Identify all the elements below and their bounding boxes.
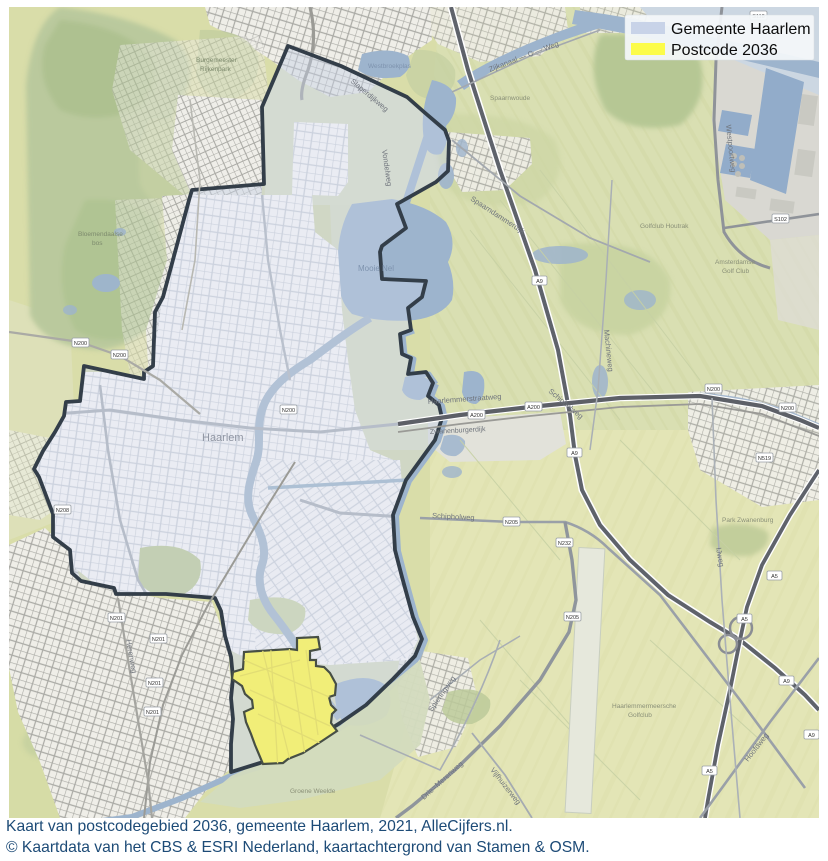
svg-text:Postcode 2036: Postcode 2036 xyxy=(671,42,778,59)
svg-text:Rijkenpark: Rijkenpark xyxy=(200,66,231,73)
svg-text:N201: N201 xyxy=(110,616,123,622)
svg-text:N205: N205 xyxy=(505,520,518,526)
svg-text:A9: A9 xyxy=(571,451,578,457)
svg-text:A5: A5 xyxy=(706,769,713,775)
svg-text:N519: N519 xyxy=(758,456,771,462)
svg-text:Burgemeester: Burgemeester xyxy=(196,57,238,64)
svg-text:Kaart van postcodegebied 2036,: Kaart van postcodegebied 2036, gemeente … xyxy=(6,818,513,835)
svg-text:Gemeente Haarlem: Gemeente Haarlem xyxy=(671,21,811,38)
svg-text:A200: A200 xyxy=(470,413,483,419)
svg-text:N201: N201 xyxy=(148,681,161,687)
svg-text:Golf Club: Golf Club xyxy=(722,268,749,275)
svg-text:Haarlemmermeersche: Haarlemmermeersche xyxy=(612,703,677,710)
svg-text:A5: A5 xyxy=(771,574,778,580)
svg-text:bos: bos xyxy=(92,240,103,247)
svg-text:© Kaartdata van het CBS & ESRI: © Kaartdata van het CBS & ESRI Nederland… xyxy=(6,839,590,856)
svg-text:Golfclub: Golfclub xyxy=(628,712,652,719)
svg-text:N201: N201 xyxy=(146,710,159,716)
svg-text:Haarlem: Haarlem xyxy=(202,432,244,444)
svg-text:N200: N200 xyxy=(113,353,126,359)
svg-text:N200: N200 xyxy=(707,387,720,393)
svg-text:Groene Weelde: Groene Weelde xyxy=(290,788,336,795)
svg-text:N200: N200 xyxy=(781,406,794,412)
svg-text:N200: N200 xyxy=(282,408,295,414)
svg-text:N205: N205 xyxy=(566,615,579,621)
svg-text:S102: S102 xyxy=(774,217,787,223)
svg-text:A200: A200 xyxy=(527,405,540,411)
svg-text:N200: N200 xyxy=(74,341,87,347)
svg-text:Golfclub Houtrak: Golfclub Houtrak xyxy=(640,223,689,230)
svg-text:Spaarnwoude: Spaarnwoude xyxy=(490,95,530,102)
svg-text:Amsterdamse: Amsterdamse xyxy=(715,259,755,266)
svg-text:A9: A9 xyxy=(808,733,815,739)
svg-text:A9: A9 xyxy=(783,679,790,685)
svg-text:N201: N201 xyxy=(152,637,165,643)
svg-text:N208: N208 xyxy=(56,508,69,514)
svg-text:Westbroekplas: Westbroekplas xyxy=(368,63,412,70)
svg-text:Mooie Nel: Mooie Nel xyxy=(358,264,394,273)
svg-text:Bloemendaalse: Bloemendaalse xyxy=(78,231,123,238)
svg-text:A9: A9 xyxy=(536,279,543,285)
svg-text:A5: A5 xyxy=(741,617,748,623)
svg-text:N232: N232 xyxy=(558,541,571,547)
svg-text:Park Zwanenburg: Park Zwanenburg xyxy=(722,517,774,524)
